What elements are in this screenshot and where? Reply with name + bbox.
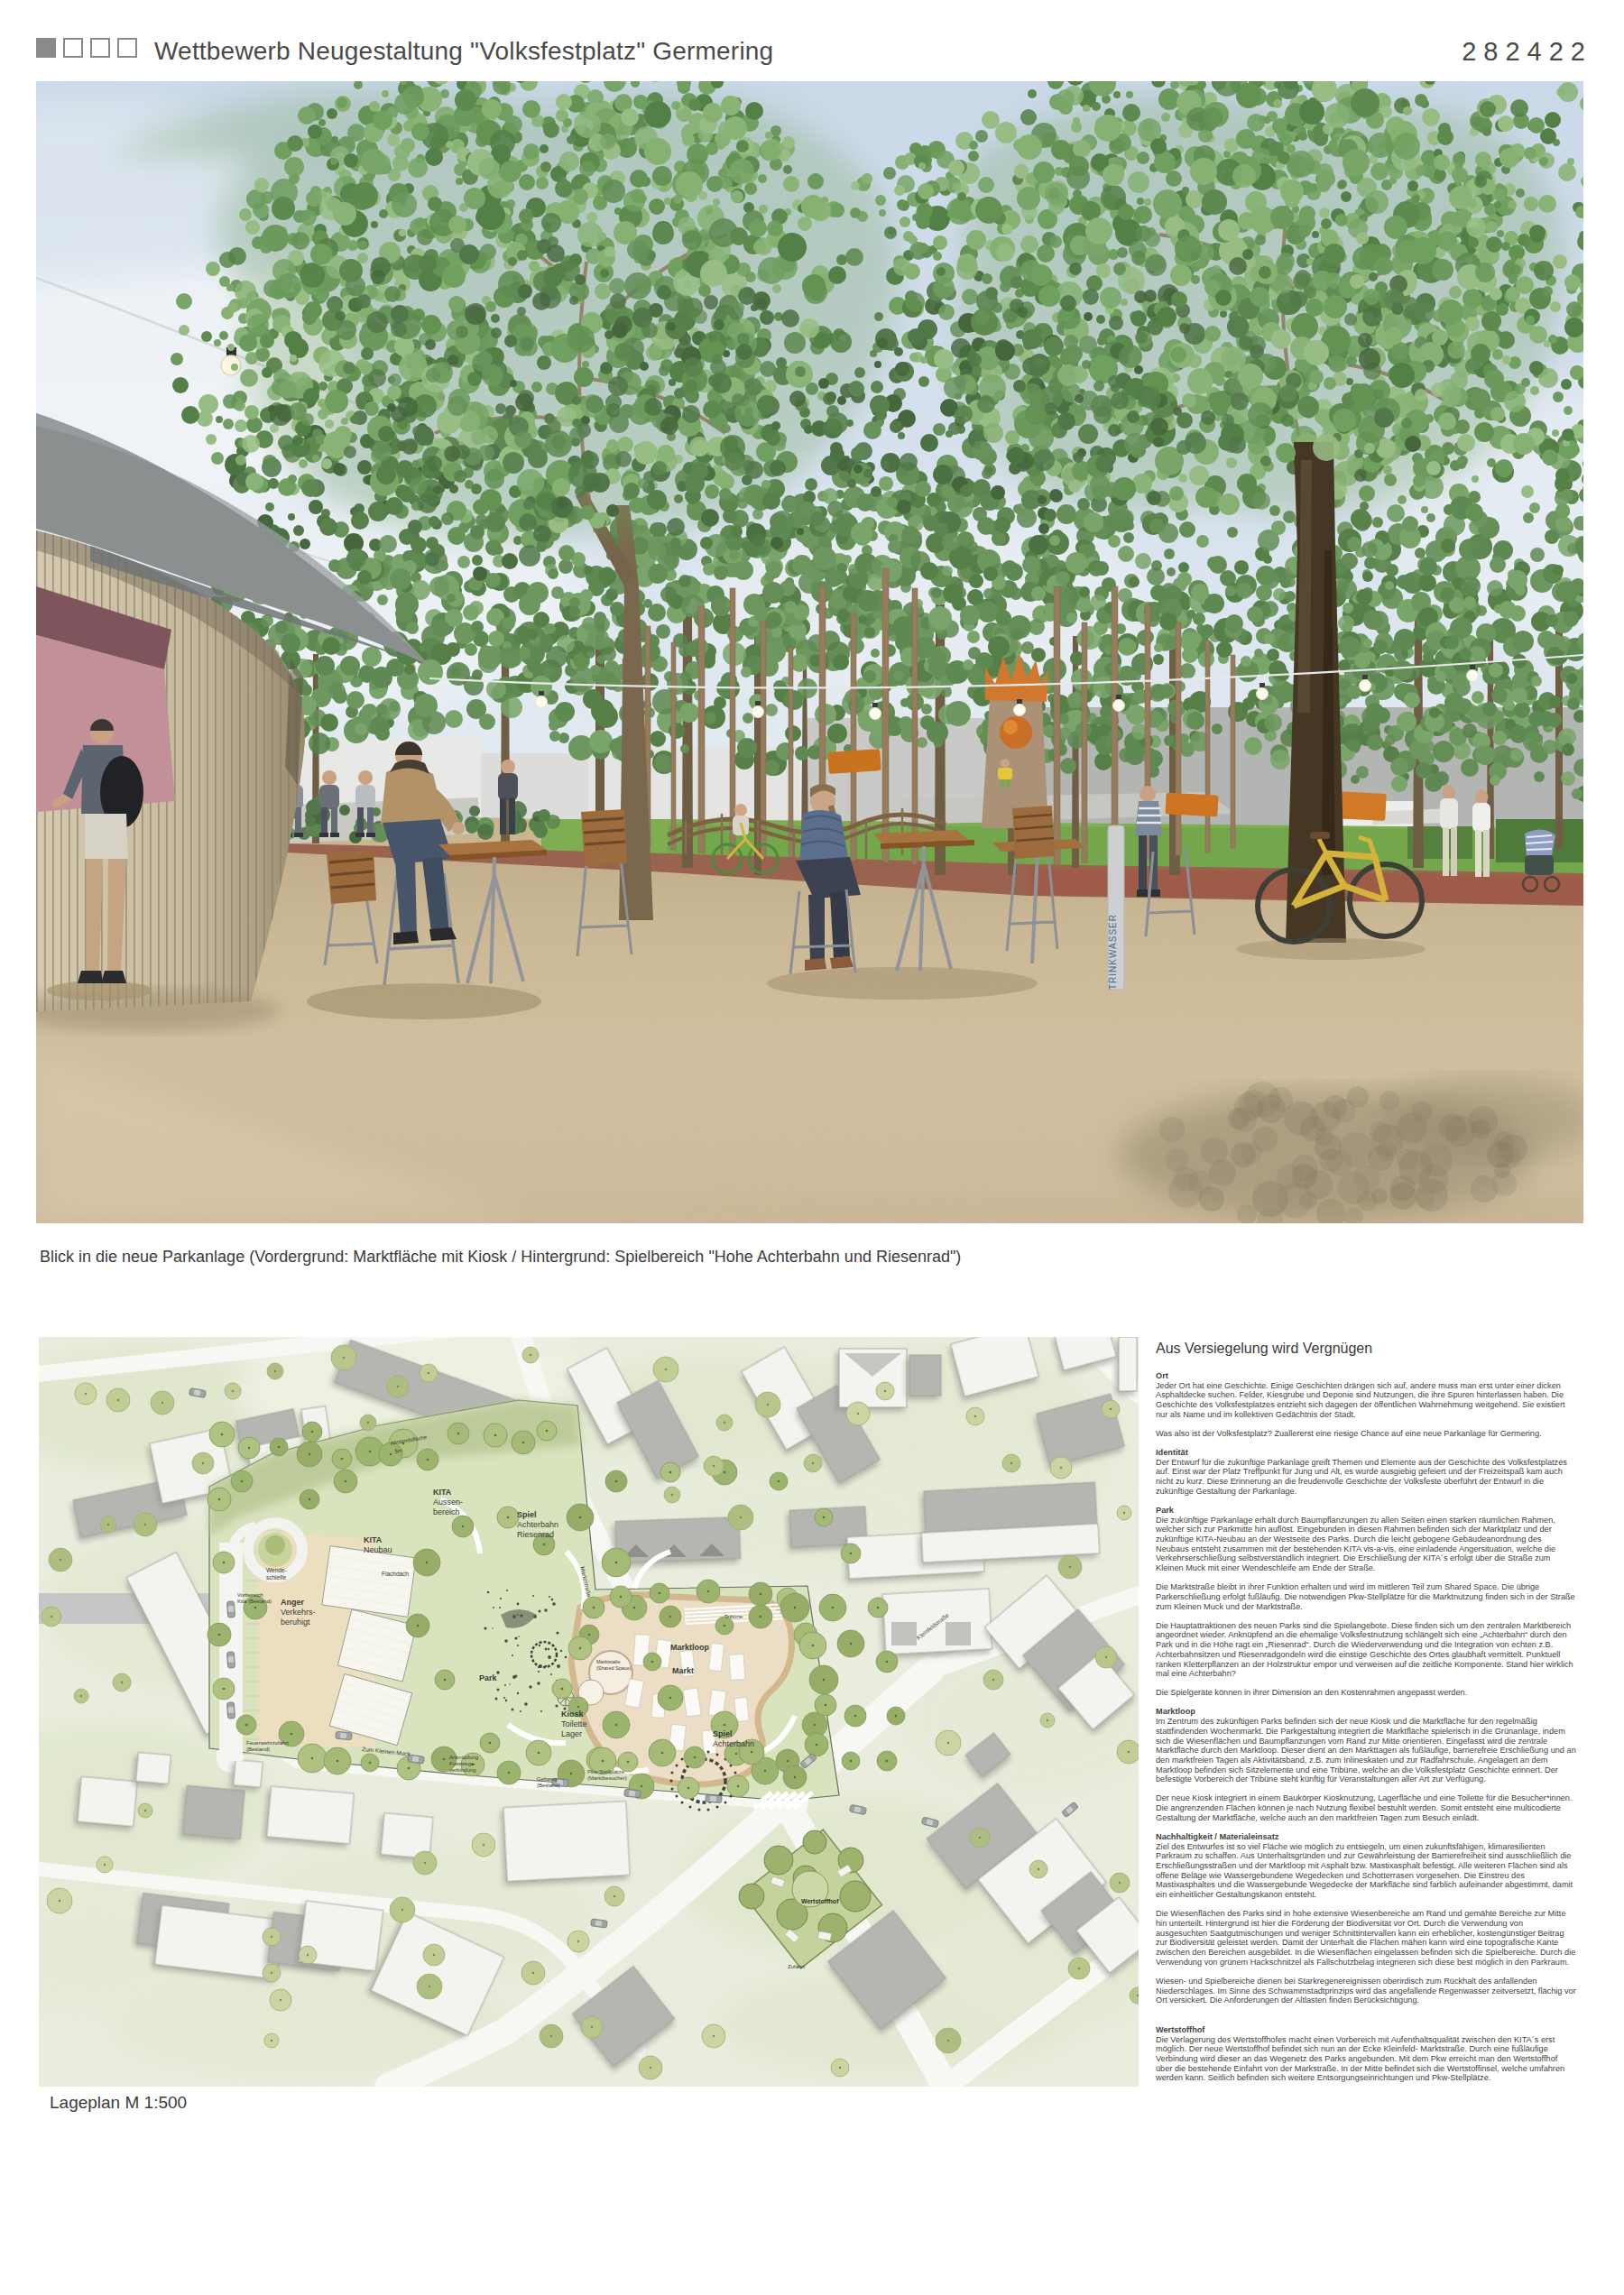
svg-text:Tribüne: Tribüne	[724, 1614, 743, 1619]
svg-text:Zufahrt: Zufahrt	[788, 1964, 805, 1969]
svg-text:Marktstalle: Marktstalle	[596, 1659, 621, 1664]
svg-text:(Bestand): (Bestand)	[246, 1747, 270, 1752]
svg-text:Achterbahn: Achterbahn	[713, 1739, 754, 1748]
svg-text:(Marktbesucher): (Marktbesucher)	[587, 1775, 627, 1781]
svg-text:Markt: Markt	[672, 1666, 694, 1675]
svg-text:Anger: Anger	[281, 1598, 305, 1607]
svg-text:Neubau: Neubau	[364, 1545, 392, 1554]
svg-text:Aussen-: Aussen-	[433, 1498, 463, 1507]
svg-text:Gehweg: Gehweg	[537, 1776, 557, 1782]
svg-text:Wende-: Wende-	[266, 1567, 287, 1573]
svg-text:Achterbahn: Achterbahn	[517, 1520, 558, 1529]
svg-text:Toilette: Toilette	[561, 1719, 587, 1728]
svg-text:Marktloop: Marktloop	[670, 1643, 710, 1652]
svg-text:(Shared Space): (Shared Space)	[596, 1665, 632, 1671]
svg-text:Wertstoffhof: Wertstoffhof	[801, 1898, 839, 1904]
svg-text:TRINKWASSER: TRINKWASSER	[1108, 914, 1118, 990]
svg-text:Fusswege-: Fusswege-	[449, 1761, 475, 1766]
svg-text:Vorbereich: Vorbereich	[237, 1592, 263, 1598]
svg-text:KITA: KITA	[433, 1488, 452, 1497]
svg-text:Kita (Bestand): Kita (Bestand)	[237, 1599, 272, 1604]
svg-text:Riesenrad: Riesenrad	[517, 1530, 554, 1539]
svg-text:Lager: Lager	[561, 1729, 582, 1738]
svg-text:schleife: schleife	[266, 1574, 286, 1581]
svg-text:Kiosk: Kiosk	[561, 1710, 585, 1719]
svg-text:Park: Park	[479, 1673, 498, 1682]
svg-text:(Bestand): (Bestand)	[537, 1783, 560, 1788]
svg-text:Pkw-Stellplätze: Pkw-Stellplätze	[587, 1769, 625, 1774]
svg-text:Verkehrs-: Verkehrs-	[281, 1608, 316, 1617]
svg-text:verbindung: verbindung	[449, 1767, 476, 1773]
svg-text:Anknüpfung: Anknüpfung	[449, 1755, 478, 1760]
svg-text:Spiel: Spiel	[517, 1510, 537, 1519]
svg-text:beruhigt: beruhigt	[281, 1618, 310, 1627]
svg-text:Feuerwehrzufahrt: Feuerwehrzufahrt	[246, 1740, 289, 1746]
svg-text:KITA: KITA	[364, 1535, 383, 1544]
svg-text:Flachdach: Flachdach	[382, 1571, 409, 1577]
svg-text:bereich: bereich	[433, 1507, 460, 1516]
svg-text:Spiel: Spiel	[713, 1729, 733, 1738]
